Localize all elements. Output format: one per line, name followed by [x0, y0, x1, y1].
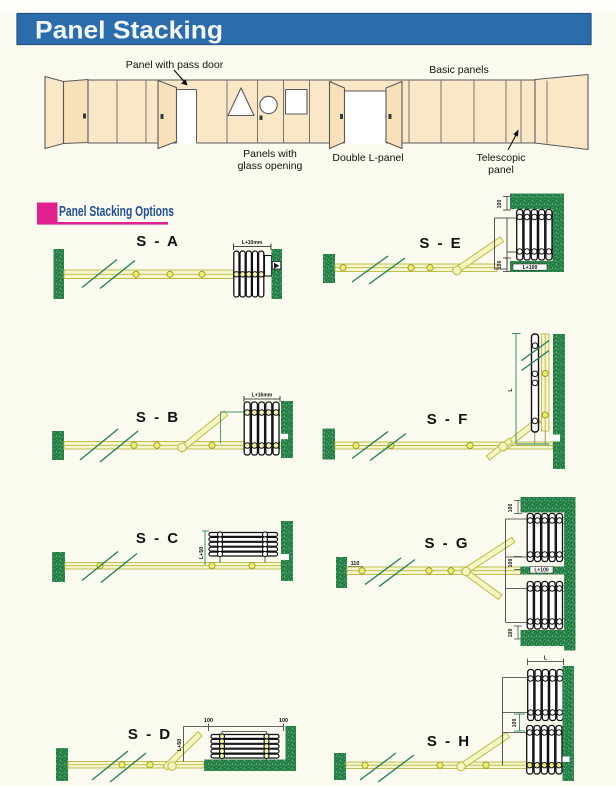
svg-text:Panel Stacking: Panel Stacking: [35, 17, 223, 45]
svg-text:100: 100: [512, 719, 518, 728]
svg-text:S - E: S - E: [419, 235, 462, 252]
svg-text:100: 100: [508, 629, 514, 638]
svg-text:110: 110: [351, 561, 360, 567]
svg-text:S - B: S - B: [136, 409, 180, 426]
svg-text:L+100: L+100: [523, 265, 538, 271]
svg-text:Telescopic: Telescopic: [476, 152, 525, 164]
svg-text:Panels with: Panels with: [243, 148, 297, 160]
svg-text:S - C: S - C: [136, 530, 180, 547]
svg-text:100: 100: [497, 200, 503, 209]
svg-text:S - F: S - F: [427, 411, 470, 428]
svg-text:Basic panels: Basic panels: [429, 64, 489, 76]
svg-text:100: 100: [508, 504, 514, 513]
svg-text:Panel Stacking Options: Panel Stacking Options: [59, 203, 174, 220]
svg-text:S - G: S - G: [424, 535, 469, 552]
svg-text:S - H: S - H: [427, 733, 471, 750]
svg-text:100: 100: [279, 718, 288, 724]
svg-text:100: 100: [508, 559, 514, 568]
svg-text:L+16mm: L+16mm: [252, 393, 273, 399]
svg-text:Double L-panel: Double L-panel: [332, 152, 403, 164]
svg-text:S - D: S - D: [128, 726, 172, 743]
svg-text:L+10mm: L+10mm: [242, 240, 263, 246]
svg-text:L+50: L+50: [177, 739, 183, 751]
svg-text:100: 100: [204, 718, 213, 724]
svg-text:S - A: S - A: [136, 233, 180, 250]
svg-text:L+50: L+50: [199, 547, 205, 559]
svg-text:Panel with pass door: Panel with pass door: [126, 59, 224, 71]
svg-text:glass opening: glass opening: [238, 160, 303, 172]
svg-text:L+100: L+100: [534, 568, 549, 574]
svg-text:100: 100: [497, 261, 503, 270]
svg-text:panel: panel: [488, 164, 514, 176]
